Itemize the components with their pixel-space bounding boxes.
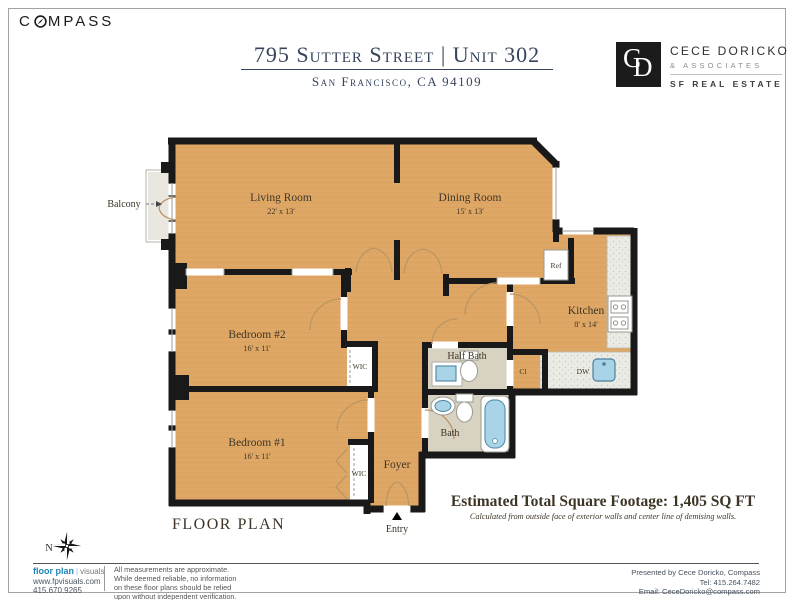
bedroom1-label: Bedroom #1 — [228, 437, 285, 449]
entry-callout: Entry — [386, 512, 408, 535]
ref-label: Ref — [551, 261, 562, 270]
bedroom1-dims: 16' x 11' — [243, 452, 271, 461]
presented-line: Email: CeceDoricko@compass.com — [631, 587, 760, 597]
bedroom2-label: Bedroom #2 — [228, 329, 285, 341]
entry-arrow-icon — [392, 512, 402, 520]
kitchen-dims: 8' x 14' — [574, 320, 598, 329]
sqft-total: Estimated Total Square Footage: 1,405 SQ… — [451, 493, 756, 510]
stove-icon — [608, 296, 632, 332]
wic1-label: WIC — [352, 469, 367, 478]
presented-line: Presented by Cece Doricko, Compass — [631, 568, 760, 578]
dining-room-label: Dining Room — [439, 192, 502, 204]
dining-room-dims: 15' x 13' — [456, 207, 484, 216]
living-room-dims: 22' x 13' — [267, 207, 295, 216]
wic2-label: WIC — [353, 362, 368, 371]
kitchen-label: Kitchen — [568, 305, 605, 317]
fpvisuals-logo: floor plan|visuals www.fpvisuals.com 415… — [33, 567, 105, 596]
footer-vertical-divider — [104, 566, 105, 591]
north-label: N — [45, 543, 53, 554]
living-room-label: Living Room — [250, 192, 312, 204]
fpvisuals-name: floor plan — [33, 566, 74, 576]
balcony-label: Balcony — [107, 199, 140, 210]
disclaimer: All measurements are approximate. While … — [114, 566, 237, 600]
fpvisuals-url: www.fpvisuals.com — [33, 577, 105, 587]
bath-label: Bath — [441, 428, 460, 439]
disclaimer-line: upon without independent verification. — [114, 593, 237, 600]
half-bath-label: Half Bath — [447, 351, 486, 362]
north-compass-rose-icon — [53, 532, 81, 560]
floor-plan-drawing: Living Room 22' x 13' Dining Room 15' x … — [0, 0, 794, 600]
footer-divider — [33, 563, 759, 564]
sqft-note: Calculated from outside face of exterior… — [470, 512, 736, 521]
foyer-label: Foyer — [384, 459, 411, 471]
floor-plan-caption: FLOOR PLAN — [172, 516, 285, 533]
fpvisuals-suffix: visuals — [80, 567, 104, 576]
closet-label: Cl — [519, 367, 526, 376]
presented-line: Tel: 415.264.7482 — [631, 578, 760, 588]
floor-plan-page: C MPASS 795 Sutter Street | Unit 302 San… — [0, 0, 794, 600]
kitchen-sink — [593, 359, 615, 381]
entry-label: Entry — [386, 524, 408, 535]
presented-by: Presented by Cece Doricko, Compass Tel: … — [631, 568, 760, 597]
fpvisuals-phone: 415.670.9265 — [33, 586, 105, 596]
apartment-floor — [172, 141, 634, 512]
bedroom2-dims: 16' x 11' — [243, 344, 271, 353]
dw-label: DW — [577, 367, 590, 376]
